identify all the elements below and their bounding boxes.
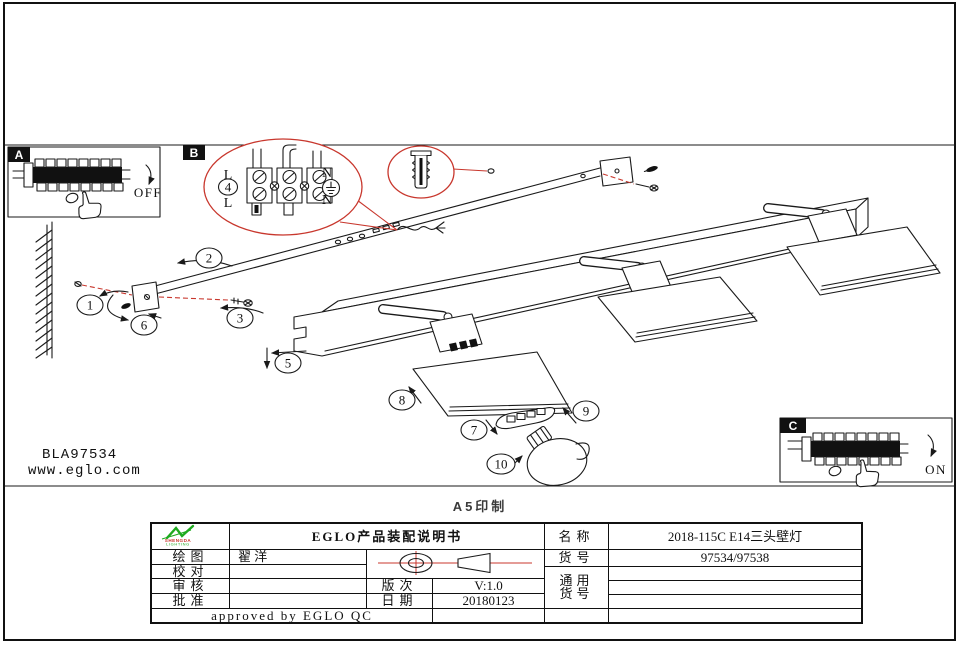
generic-item-no-row xyxy=(609,609,862,623)
generic-item-no-row xyxy=(609,566,862,580)
lamp-shade xyxy=(413,352,572,416)
terminal-strip-icon xyxy=(802,433,908,465)
anchor-callout xyxy=(388,146,494,198)
detail-a: A OFF xyxy=(8,147,162,221)
step-marker-6: 6 xyxy=(141,318,148,333)
lamp-bar xyxy=(294,198,868,356)
neutral-label-top: N xyxy=(322,166,332,181)
light-bulb-icon xyxy=(523,426,591,491)
step-marker-3: 3 xyxy=(237,311,244,326)
generic-item-no-label-empty xyxy=(545,609,609,623)
field-value-item-no: 97534/97538 xyxy=(609,550,862,566)
generic-item-no-row xyxy=(609,594,862,608)
field-label-review: 审核 xyxy=(152,579,230,594)
step-marker-2: 2 xyxy=(206,251,213,266)
svg-text:4: 4 xyxy=(225,180,232,195)
step-marker-8: 8 xyxy=(399,393,406,408)
product-code: BLA97534 xyxy=(28,447,141,463)
product-code-block: BLA97534 www.eglo.com xyxy=(28,447,141,479)
field-label-name: 名称 xyxy=(545,524,609,550)
title-block: SHENGDA LIGHTING EGLO产品装配说明书 绘图 翟 洋 校对 xyxy=(150,522,863,624)
approved-note-empty-cell xyxy=(433,608,545,623)
step-marker-5: 5 xyxy=(285,356,292,371)
step-marker-7: 7 xyxy=(471,423,478,438)
field-label-generic-item-no: 通用 货号 xyxy=(545,566,609,609)
wall-hatching xyxy=(36,222,52,358)
detail-c-label: C xyxy=(789,419,798,433)
print-note: A5印制 xyxy=(453,496,508,515)
off-label: OFF xyxy=(134,185,162,200)
step-marker-9: 9 xyxy=(583,404,590,419)
detail-b: B L L N N xyxy=(183,139,397,235)
step-marker-10: 10 xyxy=(495,457,508,472)
field-label-version: 版次 xyxy=(367,579,433,594)
field-value-proof xyxy=(230,564,367,579)
step-marker-4: 4 xyxy=(219,179,238,195)
field-value-version: V:1.0 xyxy=(433,579,545,594)
earth-ground-icon xyxy=(323,180,340,197)
field-label-item-no: 货号 xyxy=(545,550,609,566)
instruction-sheet: A OFF B xyxy=(0,0,960,647)
field-value-draw: 翟 洋 xyxy=(230,549,367,564)
title-block-left: SHENGDA LIGHTING EGLO产品装配说明书 绘图 翟 洋 校对 xyxy=(151,523,545,623)
field-label-approve: 批准 xyxy=(152,593,230,608)
logo-line2: LIGHTING xyxy=(166,542,190,546)
title-block-right: 名称 2018-115C E14三头壁灯 货号 97534/97538 通用 货… xyxy=(544,523,862,623)
field-value-review xyxy=(230,579,367,594)
field-value-approve xyxy=(230,593,367,608)
field-label-proof: 校对 xyxy=(152,564,230,579)
on-label: ON xyxy=(925,462,947,477)
field-label-draw: 绘图 xyxy=(152,549,230,564)
company-logo: SHENGDA LIGHTING xyxy=(152,524,230,550)
website-link[interactable]: www.eglo.com xyxy=(28,463,141,479)
document-title: EGLO产品装配说明书 xyxy=(230,524,545,550)
first-angle-projection-icon xyxy=(367,549,545,579)
field-value-date: 20180123 xyxy=(433,593,545,608)
detail-a-label: A xyxy=(15,148,24,162)
detail-b-label: B xyxy=(190,146,199,160)
terminal-strip-icon xyxy=(24,159,130,191)
step-marker-1: 1 xyxy=(87,298,94,313)
field-value-name: 2018-115C E14三头壁灯 xyxy=(609,524,862,550)
live-label-bottom: L xyxy=(224,196,233,211)
screw-icon xyxy=(231,298,252,306)
field-label-date: 日期 xyxy=(367,593,433,608)
screw-icon xyxy=(644,165,659,174)
generic-item-no-row xyxy=(609,580,862,594)
detail-c: C ON xyxy=(780,418,952,488)
screw-icon xyxy=(636,184,658,191)
approved-note: approved by EGLO QC xyxy=(152,608,433,623)
